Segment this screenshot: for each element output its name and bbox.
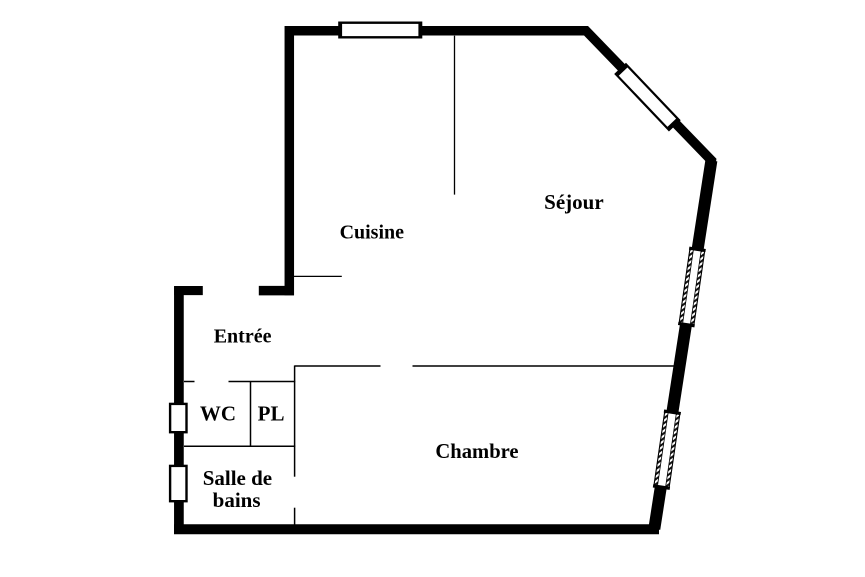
svg-text:Cuisine: Cuisine bbox=[340, 222, 405, 244]
svg-text:bains: bains bbox=[213, 488, 261, 512]
svg-text:PL: PL bbox=[258, 402, 285, 426]
svg-text:Salle de: Salle de bbox=[203, 466, 272, 490]
svg-text:Entrée: Entrée bbox=[214, 326, 272, 348]
svg-text:Séjour: Séjour bbox=[544, 190, 604, 214]
svg-text:Chambre: Chambre bbox=[435, 441, 518, 463]
svg-text:WC: WC bbox=[200, 402, 236, 426]
